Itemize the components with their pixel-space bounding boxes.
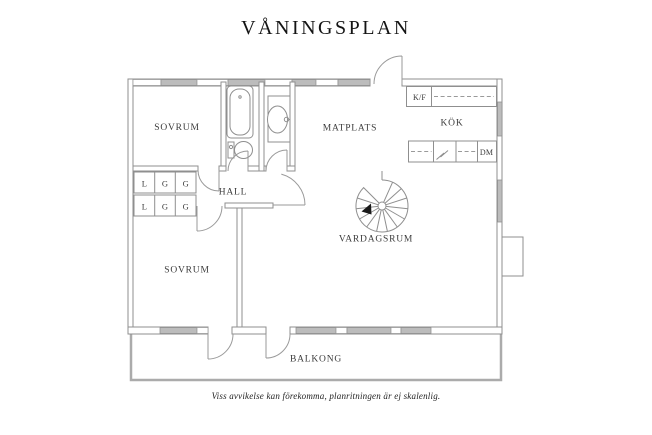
room-label-sovrum-bottom: SOVRUM bbox=[164, 266, 209, 276]
disclaimer-text: Viss avvikelse kan förekomma, planritnin… bbox=[0, 391, 652, 401]
room-label-hall: HALL bbox=[219, 188, 248, 198]
balcony-door-left bbox=[208, 334, 233, 359]
room-label-balkong: BALKONG bbox=[290, 355, 342, 365]
floorplan-drawing: SOVRUM MATPLATS KÖK HALL VARDAGSRUM SOVR… bbox=[0, 0, 652, 435]
spiral-staircase bbox=[356, 171, 408, 232]
washbasin bbox=[268, 96, 291, 142]
balcony-door-right bbox=[266, 334, 290, 358]
bedroom-top-door bbox=[198, 170, 219, 191]
closet-label: G bbox=[162, 202, 168, 212]
hall-livingroom-door bbox=[273, 174, 305, 205]
toilet bbox=[228, 142, 253, 159]
shower-room-door bbox=[266, 150, 287, 171]
wall-bumpout bbox=[502, 237, 523, 276]
closet-label: G bbox=[162, 179, 168, 189]
label-fridge-freezer: K/F bbox=[413, 93, 426, 102]
room-label-kok: KÖK bbox=[441, 117, 464, 129]
closet-label: G bbox=[183, 179, 189, 189]
entrance-door bbox=[374, 56, 402, 84]
room-label-matplats: MATPLATS bbox=[323, 124, 377, 134]
stair-direction-arrow-icon bbox=[362, 204, 372, 215]
floorplan-page: VÅNINGSPLAN bbox=[0, 0, 652, 435]
closet-label: L bbox=[142, 179, 147, 189]
label-dishwasher: DM bbox=[480, 148, 493, 157]
bedroom-bottom-door bbox=[197, 206, 222, 231]
room-label-sovrum-top: SOVRUM bbox=[154, 123, 199, 133]
bathtub bbox=[227, 86, 253, 138]
closet-label: G bbox=[183, 202, 189, 212]
closet-label: L bbox=[142, 202, 147, 212]
room-label-vardagsrum: VARDAGSRUM bbox=[339, 235, 413, 245]
